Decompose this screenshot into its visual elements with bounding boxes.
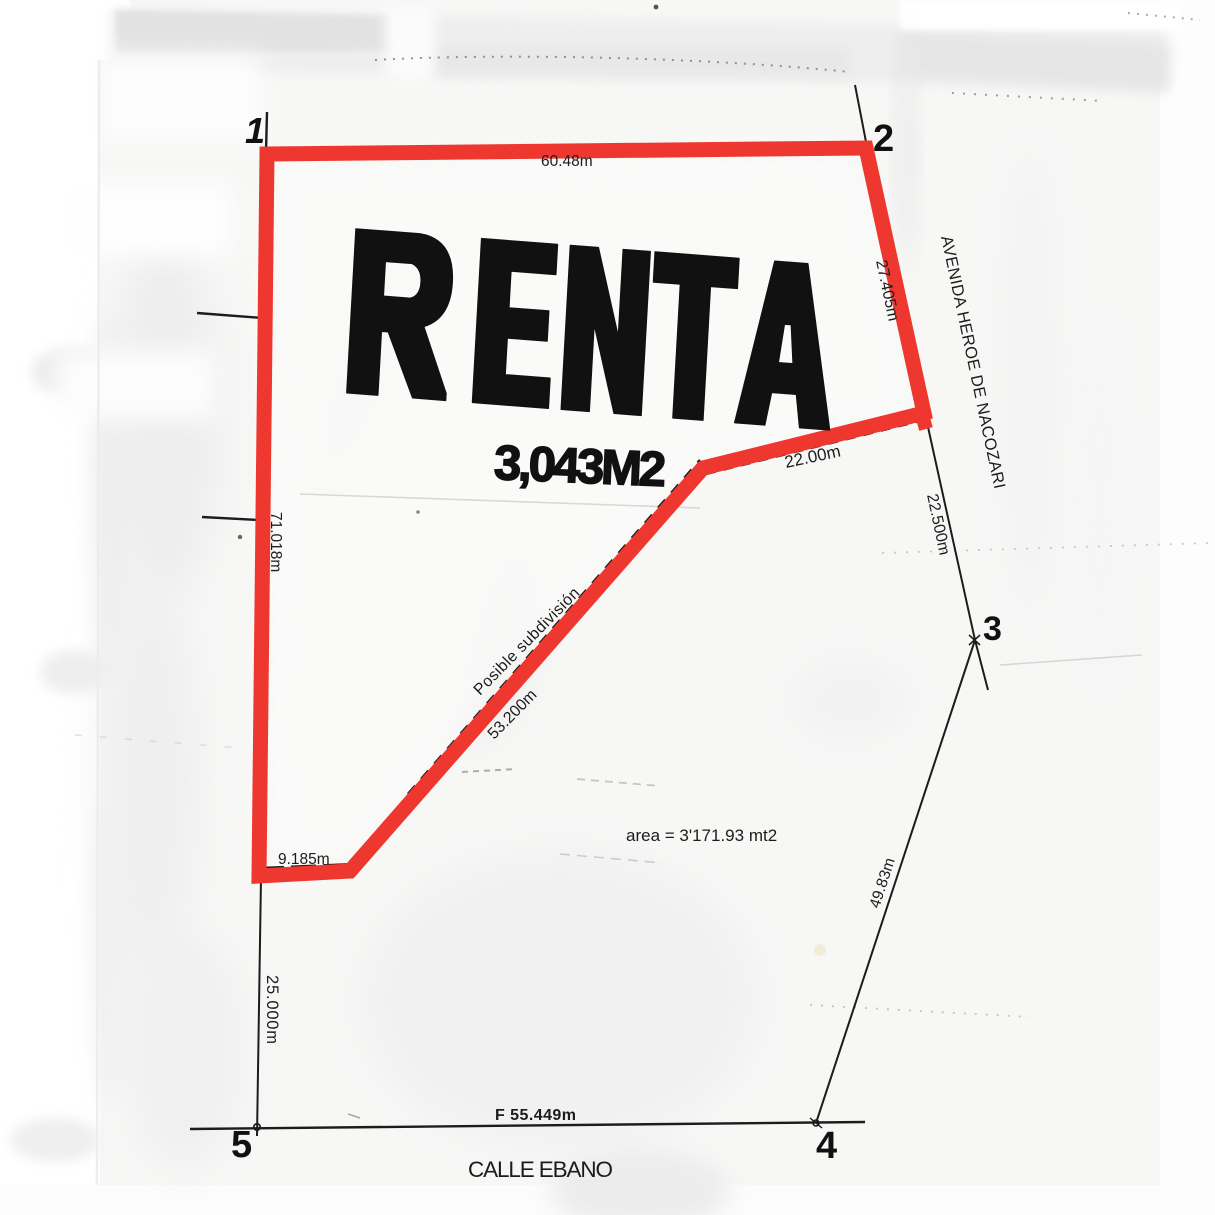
svg-text:71.018m: 71.018m xyxy=(267,512,284,572)
svg-text:25.000m: 25.000m xyxy=(263,975,281,1045)
svg-text:F 55.449m: F 55.449m xyxy=(495,1107,576,1124)
svg-text:9.185m: 9.185m xyxy=(278,851,330,868)
svg-text:5: 5 xyxy=(231,1124,252,1166)
svg-text:area = 3'171.93 mt2: area = 3'171.93 mt2 xyxy=(626,826,777,845)
svg-text:3,043M2: 3,043M2 xyxy=(493,436,667,497)
svg-text:60.48m: 60.48m xyxy=(541,153,593,170)
svg-text:3: 3 xyxy=(983,610,1002,648)
svg-text:1: 1 xyxy=(245,110,265,151)
svg-text:2: 2 xyxy=(873,118,894,160)
svg-text:CALLE EBANO: CALLE EBANO xyxy=(468,1157,614,1182)
svg-text:4: 4 xyxy=(816,1125,837,1167)
